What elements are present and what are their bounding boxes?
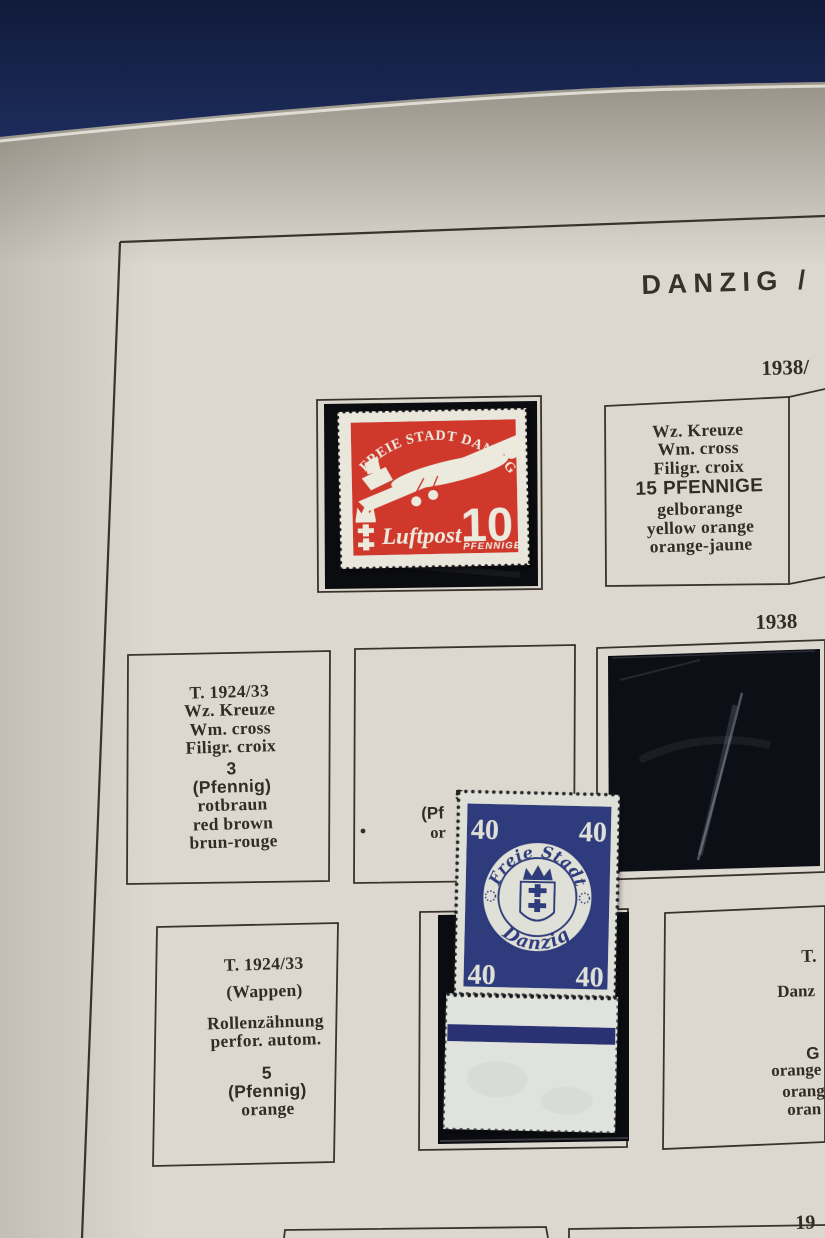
- label-line: (Wappen): [226, 981, 303, 1002]
- airmail-script-text: Luftpost: [381, 522, 462, 549]
- year-label-bottom: 19: [795, 1211, 816, 1235]
- label-line: T. 1924/33: [224, 954, 304, 975]
- page-title: DANZIG /: [641, 265, 812, 301]
- arms-value-bl: 40: [467, 960, 496, 992]
- airmail-unit: PFENNIGE: [463, 540, 521, 552]
- stamp-mount-empty: [608, 649, 820, 872]
- coat-of-arms-graphic: [520, 865, 555, 921]
- label-mid-center-fragment: (Pf: [421, 803, 458, 824]
- label-line: orange: [241, 1099, 295, 1119]
- photo-of-stamp-album-page: 5 FREIE STADT DANZIG Luf: [0, 0, 825, 1238]
- label-line: 3: [226, 759, 237, 778]
- arms-value-tr: 40: [579, 817, 608, 849]
- label-bottom-right-line: Danz: [777, 981, 815, 1002]
- label-line: 5: [262, 1063, 273, 1082]
- label-bottom-right-line: oran: [787, 1099, 822, 1120]
- year-label-middle: 1938: [755, 609, 798, 635]
- label-bottom-right-line: T.: [801, 946, 817, 967]
- arms-value-br: 40: [575, 962, 604, 994]
- label-line: orange-jaune: [649, 535, 752, 556]
- label-line: perfor. autom.: [210, 1029, 321, 1051]
- label-line: 15 PFENNIGE: [635, 475, 763, 500]
- label-line: brun-rouge: [189, 831, 278, 852]
- ink-speck: [361, 829, 366, 834]
- label-top-right: Wz. Kreuze Wm. cross Filigr. croix 15 PF…: [595, 418, 804, 557]
- album-page-graphics: 5 FREIE STADT DANZIG Luf: [0, 0, 825, 1238]
- airmail-stamp: FREIE STADT DANZIG Luftpost 10 PFENNIGE: [337, 408, 529, 569]
- arms-stamp: 40 40 40 40 Freie Stadt Danzig: [443, 791, 623, 1133]
- label-mid-center-fragment: or: [430, 823, 446, 843]
- label-line: Filigr. croix: [653, 457, 744, 478]
- label-bottom-right-line: orange: [771, 1060, 822, 1081]
- label-bottom-left: T. 1924/33 (Wappen) Rollenzähnung perfor…: [186, 953, 346, 1121]
- label-line: Filigr. croix: [185, 736, 276, 757]
- arms-value-tl: 40: [471, 815, 500, 847]
- year-label-top: 1938/: [761, 355, 809, 381]
- label-mid-left: T. 1924/33 Wz. Kreuze Wm. cross Filigr. …: [140, 680, 323, 854]
